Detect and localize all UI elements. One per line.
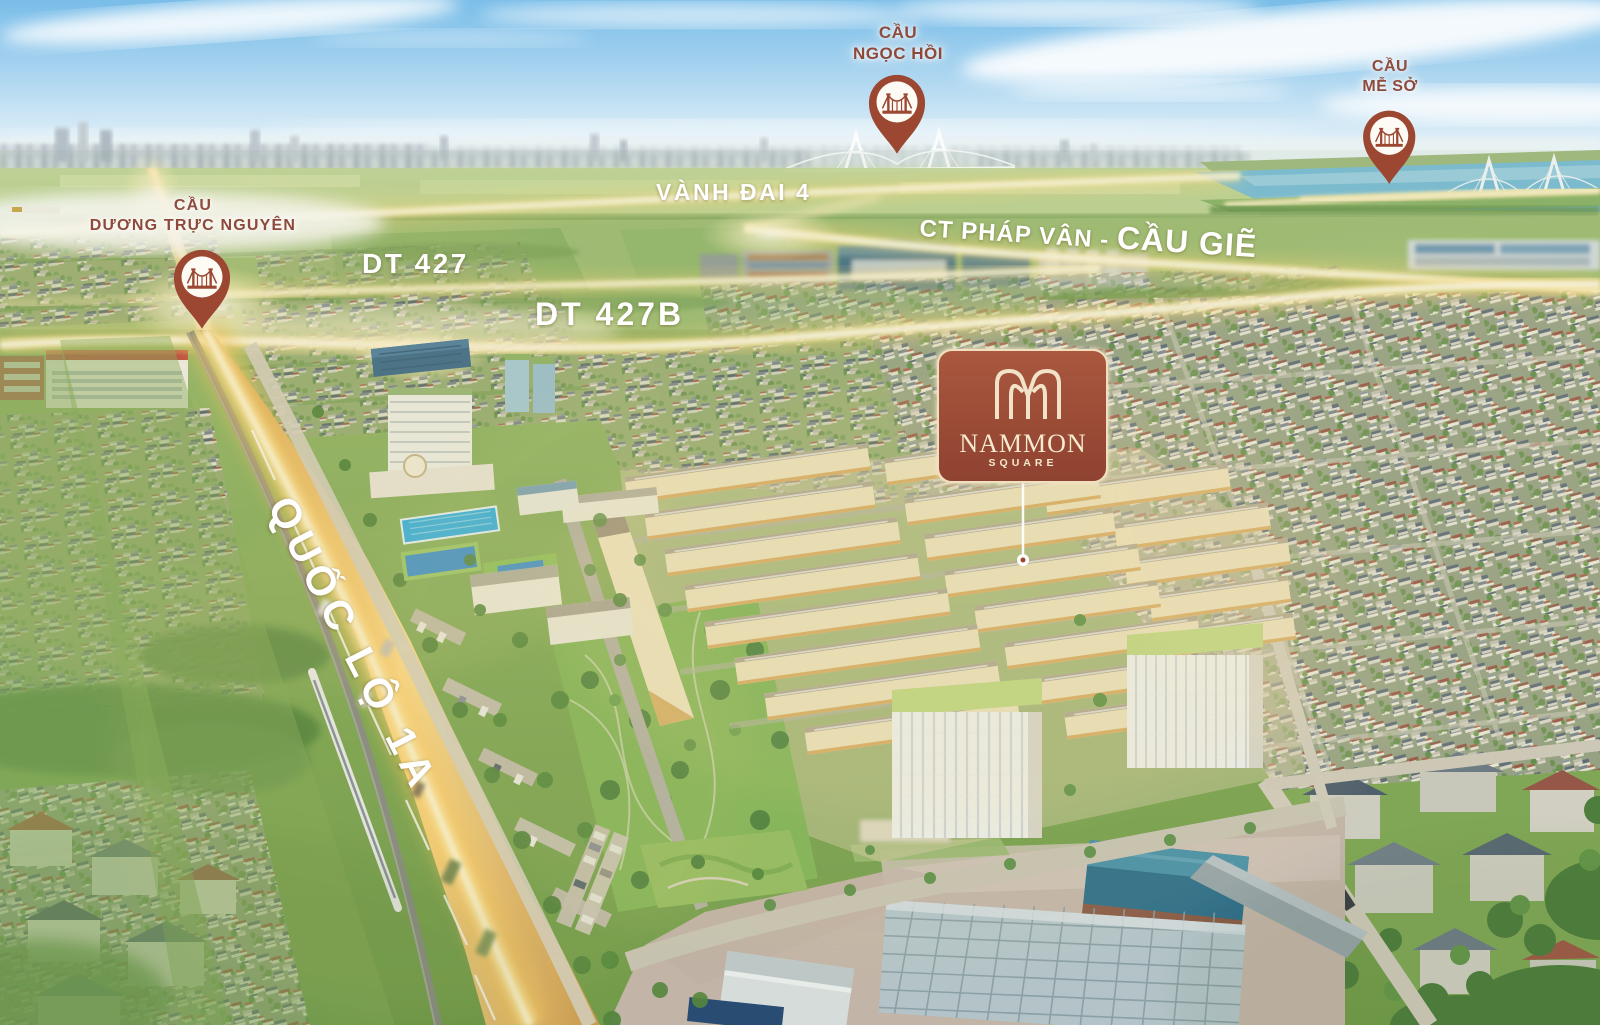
svg-text:SQUARE: SQUARE <box>989 457 1058 469</box>
svg-text:NAMMON: NAMMON <box>959 429 1086 458</box>
